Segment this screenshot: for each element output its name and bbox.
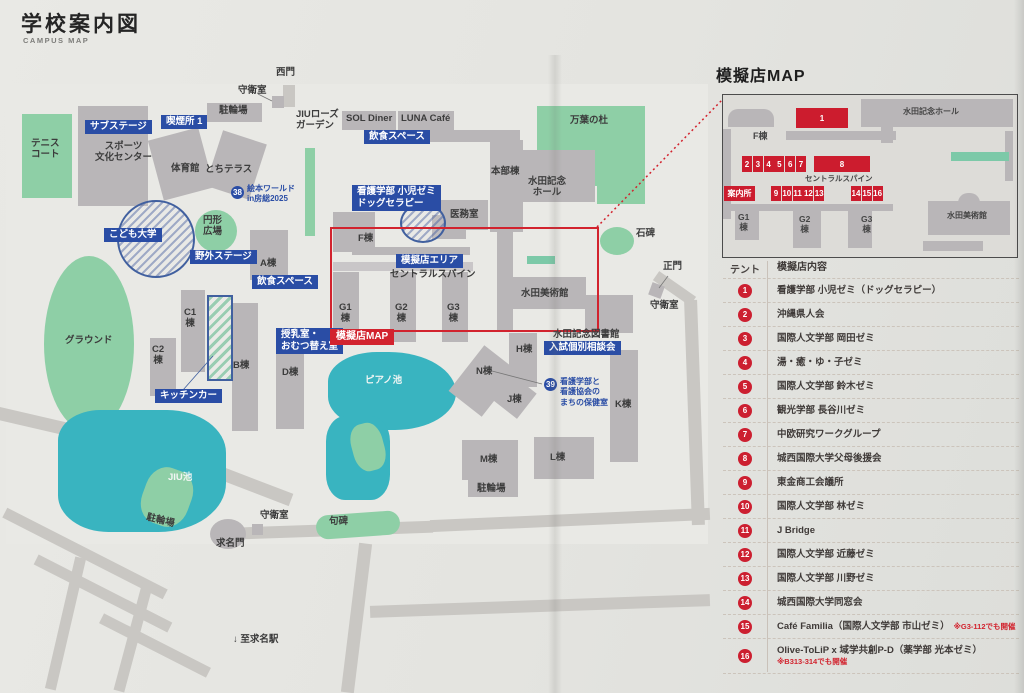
label-west-gate: 西門: [276, 68, 295, 79]
label-stall-area: 模擬店エリア: [396, 254, 463, 268]
stall-row-13: 13国際人文学部 川野ゼミ: [723, 567, 1019, 591]
label-guard-west: 守衛室: [238, 86, 267, 97]
label-luna-cafe: LUNA Café: [401, 114, 450, 125]
stall-num-4: 4: [738, 356, 752, 370]
campus-map-page: { "header": { "title": "学校案内図", "subtitl…: [0, 0, 1024, 693]
label-mizuta-hall: 水田記念 ホール: [528, 177, 566, 199]
stall-box-16: 16: [873, 186, 883, 201]
legend-header-row: テント 模擬店内容: [723, 259, 1019, 279]
c1-building: [181, 290, 205, 372]
badge-38-text: 絵本ワールド in房総2025: [247, 184, 295, 205]
label-c2: C2 棟: [152, 345, 164, 367]
stall-name-5: 国際人文学部 鈴木ゼミ: [767, 381, 875, 393]
stall-note-16: ※B313-314でも開催: [777, 657, 982, 666]
stall-name-8: 城西国際大学父母後援会: [767, 453, 882, 465]
label-g3: G3 棟: [447, 303, 460, 325]
stall-box-1: 1: [796, 108, 848, 128]
label-stall-map-marker: 模擬店MAP: [330, 329, 394, 345]
label-admission-consult: 入試個別相談会: [544, 341, 621, 355]
label-library: 水田記念図書館: [553, 330, 620, 341]
label-smoking-area-1: 喫煙所 1: [161, 115, 207, 129]
stall-note-15: ※G3-112でも開催: [954, 622, 1016, 631]
label-h-building: H棟: [516, 345, 532, 356]
label-ground: グラウンド: [65, 336, 113, 347]
stall-num-10: 10: [738, 500, 752, 514]
label-outdoor-stage: 野外ステージ: [190, 250, 257, 264]
inset-hall-label: 水田記念ホール: [903, 107, 959, 116]
stall-name-9: 東金商工会議所: [767, 477, 844, 489]
label-sol-diner: SOL Diner: [346, 114, 392, 125]
stall-name-15: Café Familia（国際人文学部 市山ゼミ）: [777, 621, 950, 632]
stall-box-2: 2: [742, 156, 752, 172]
honbu-building: [490, 140, 523, 232]
label-kitchen-car: キッチンカー: [155, 389, 222, 403]
label-stone-monument: 石碑: [636, 229, 655, 240]
label-honbu: 本部棟: [491, 167, 520, 178]
stall-legend-list: テント 模擬店内容 1看護学部 小児ゼミ（ドッグセラピー） 2沖縄県人会 3国際…: [723, 259, 1019, 674]
stall-name-1: 看護学部 小児ゼミ（ドッグセラピー）: [767, 285, 941, 297]
label-j-building: J棟: [507, 395, 522, 406]
stall-box-6: 6: [785, 156, 795, 172]
label-sub-stage: サブステージ: [85, 120, 152, 134]
stall-map-title: 模擬店MAP: [716, 62, 806, 86]
label-guard-south: 守衛室: [260, 511, 289, 522]
page-subtitle: CAMPUS MAP: [23, 36, 89, 45]
label-l-building: L棟: [550, 453, 565, 464]
stall-box-15: 15: [862, 186, 872, 201]
stall-box-14: 14: [851, 186, 861, 201]
inset-museum-bump: [958, 193, 980, 205]
stall-name-12: 国際人文学部 近藤ゼミ: [767, 549, 875, 561]
stall-row-1: 1看護学部 小児ゼミ（ドッグセラピー）: [723, 279, 1019, 303]
inset-g1-label: G1 棟: [738, 213, 749, 233]
inset-arch-building: [728, 109, 774, 127]
guard-box-south: [252, 524, 263, 535]
label-sports-center: スポーツ 文化センター: [95, 142, 152, 164]
stall-num-3: 3: [738, 332, 752, 346]
green-strip: [305, 148, 315, 236]
legend-header-tent: テント: [723, 261, 767, 276]
road: [370, 594, 710, 618]
label-to-gumyo-station: ↓ 至求名駅: [233, 635, 278, 646]
stall-box-3: 3: [753, 156, 763, 172]
stall-num-16: 16: [738, 649, 752, 663]
stall-num-15: 15: [738, 620, 752, 634]
stall-row-7: 7中欧研究ワークグループ: [723, 423, 1019, 447]
stall-name-3: 国際人文学部 岡田ゼミ: [767, 333, 875, 345]
stall-box-10: 10: [782, 186, 792, 201]
inset-spine-label: セントラルスパイン: [805, 175, 873, 184]
label-m-building: M棟: [480, 455, 497, 466]
inset-museum-label: 水田美術館: [947, 211, 987, 220]
inset-g3-label: G3 棟: [861, 215, 872, 235]
stall-box-12: 12: [803, 186, 813, 201]
stall-row-9: 9東金商工会議所: [723, 471, 1019, 495]
manyo-grove: [597, 184, 645, 204]
stall-row-3: 3国際人文学部 岡田ゼミ: [723, 327, 1019, 351]
stall-row-11: 11J Bridge: [723, 519, 1019, 543]
stall-name-11: J Bridge: [767, 525, 815, 537]
guard-box-west: [272, 96, 284, 108]
d-building: [276, 343, 304, 429]
badge-39-text: 看護学部と 看護協会の まちの保健室: [560, 377, 608, 408]
label-g1: G1 棟: [339, 303, 352, 325]
label-kodomo-university: こども大学: [104, 228, 162, 242]
label-manyo-grove: 万葉の杜: [570, 116, 608, 127]
label-bike-south: 駐輪場: [477, 484, 506, 495]
stall-row-14: 14城西国際大学同窓会: [723, 591, 1019, 615]
stall-name-4: 湯・癒・ゆ・子ゼミ: [767, 357, 863, 369]
label-piano-pond: ピアノ池: [365, 376, 402, 387]
stone-monument-lawn: [600, 227, 634, 255]
stall-name-6: 観光学部 長谷川ゼミ: [767, 405, 865, 417]
label-b-building: B棟: [233, 361, 249, 372]
stall-row-4: 4湯・癒・ゆ・子ゼミ: [723, 351, 1019, 375]
label-main-gate: 正門: [663, 262, 682, 273]
stall-box-5: 5: [774, 156, 784, 172]
label-bike-north: 駐輪場: [219, 106, 248, 117]
label-c1: C1 棟: [184, 308, 196, 330]
inset-f-label: F棟: [753, 131, 768, 141]
label-tennis-court: テニス コート: [31, 139, 60, 161]
label-n-building: N棟: [476, 367, 492, 378]
stall-num-9: 9: [738, 476, 752, 490]
label-central-spine: セントラルスパイン: [390, 270, 476, 281]
stall-num-14: 14: [738, 596, 752, 610]
stall-name-16: Olive-ToLiP x 域学共創P-D（薬学部 光本ゼミ）: [777, 645, 982, 656]
label-food-space-west: 飲食スペース: [252, 275, 318, 289]
label-k-building: K棟: [615, 400, 631, 411]
kitchen-car-zone: [207, 295, 233, 381]
inset-green-strip: [951, 152, 1009, 161]
stall-name-2: 沖縄県人会: [767, 309, 825, 321]
stall-box-8: 8: [814, 156, 870, 172]
label-tochi-terrace: とちテラス: [205, 165, 252, 176]
stall-num-6: 6: [738, 404, 752, 418]
legend-header-content: 模擬店内容: [767, 262, 827, 275]
label-food-space-north: 飲食スペース: [364, 130, 430, 144]
label-g2: G2 棟: [395, 303, 408, 325]
inset-g2-label: G2 棟: [799, 215, 810, 235]
label-a-building: A棟: [260, 259, 276, 270]
stall-name-13: 国際人文学部 川野ゼミ: [767, 573, 875, 585]
stall-num-5: 5: [738, 380, 752, 394]
inset-corridor: [786, 131, 896, 140]
label-medical-office: 医務室: [450, 210, 479, 221]
stall-num-13: 13: [738, 572, 752, 586]
info-desk-box: 案内所: [724, 186, 755, 201]
stall-num-8: 8: [738, 452, 752, 466]
label-haiku-monument: 句碑: [329, 517, 348, 528]
stall-row-6: 6観光学部 長谷川ゼミ: [723, 399, 1019, 423]
stall-name-14: 城西国際大学同窓会: [767, 597, 863, 609]
stall-map-inset: 水田記念ホール F棟 1 2 3 4 5 6 7 8 セントラルスパイン 案内所…: [722, 94, 1018, 258]
stall-name-7: 中欧研究ワークグループ: [767, 429, 881, 441]
label-d-building: D棟: [282, 368, 298, 379]
stall-num-12: 12: [738, 548, 752, 562]
label-jiu-pond: JIU池: [168, 473, 192, 484]
stall-row-10: 10国際人文学部 林ゼミ: [723, 495, 1019, 519]
label-art-museum: 水田美術館: [521, 289, 569, 300]
label-dog-therapy: 看護学部 小児ゼミ ドッグセラピー: [352, 185, 441, 211]
stall-row-15: 15Café Familia（国際人文学部 市山ゼミ）※G3-112でも開催: [723, 615, 1019, 639]
stall-num-1: 1: [738, 284, 752, 298]
road: [283, 85, 295, 107]
stall-box-7: 7: [796, 156, 806, 172]
label-gumyo-gate: 求名門: [216, 539, 245, 550]
stall-row-8: 8城西国際大学父母後援会: [723, 447, 1019, 471]
stall-row-16: 16Olive-ToLiP x 域学共創P-D（薬学部 光本ゼミ）※B313-3…: [723, 639, 1019, 674]
page-title: 学校案内図: [21, 8, 141, 38]
stall-name-10: 国際人文学部 林ゼミ: [767, 501, 865, 513]
stall-num-11: 11: [738, 524, 752, 538]
stall-row-12: 12国際人文学部 近藤ゼミ: [723, 543, 1019, 567]
label-f-building: F棟: [358, 234, 373, 245]
stall-box-4: 4: [764, 156, 774, 172]
label-guard-main: 守衛室: [650, 301, 679, 312]
stall-num-2: 2: [738, 308, 752, 322]
stall-box-9: 9: [771, 186, 781, 201]
road: [341, 543, 372, 693]
label-gymnasium: 体育館: [171, 164, 200, 175]
inset-bottom-building: [923, 241, 983, 251]
badge-38: 38: [231, 186, 244, 199]
stall-box-11: 11: [793, 186, 803, 201]
stall-row-2: 2沖縄県人会: [723, 303, 1019, 327]
badge-39: 39: [544, 378, 557, 391]
stall-row-5: 5国際人文学部 鈴木ゼミ: [723, 375, 1019, 399]
label-circular-plaza: 円形 広場: [203, 216, 222, 238]
stall-box-13: 13: [814, 186, 824, 201]
label-jiu-rose-garden: JIUローズ ガーデン: [296, 110, 339, 132]
stall-num-7: 7: [738, 428, 752, 442]
